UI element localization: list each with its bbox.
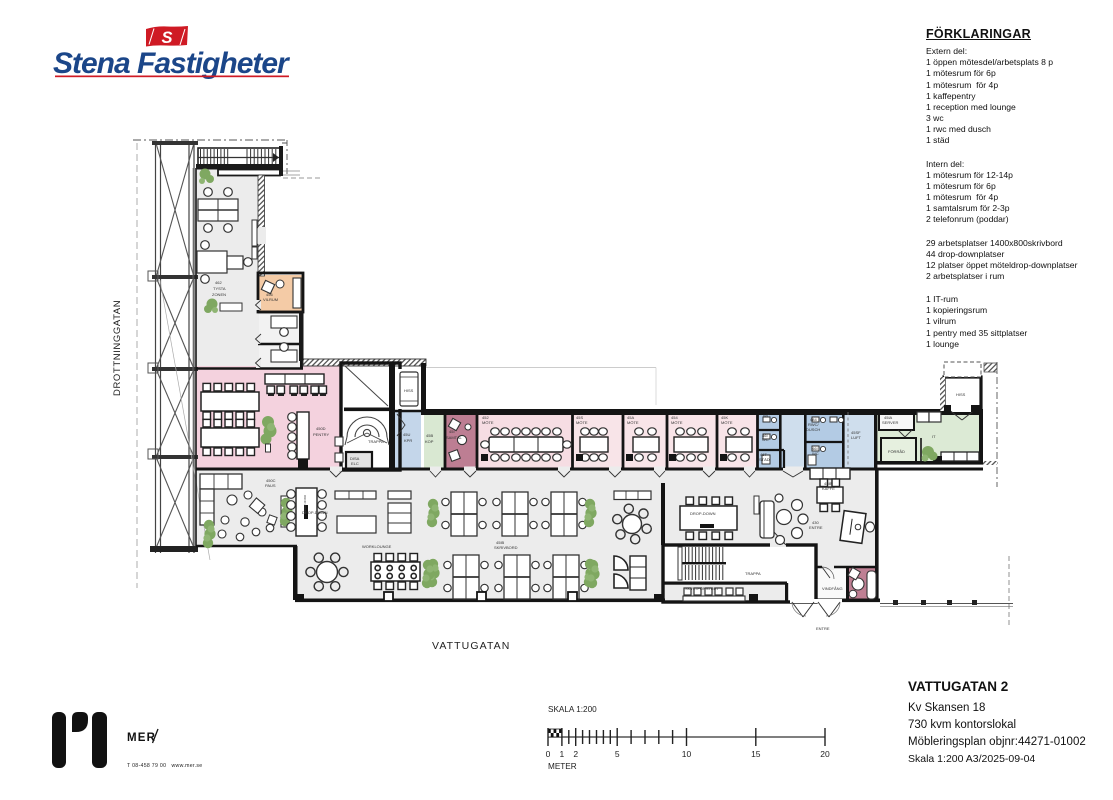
svg-text:TRAPPA: TRAPPA xyxy=(745,571,761,576)
svg-text:MER: MER xyxy=(127,732,156,744)
svg-text:ENTRE: ENTRE xyxy=(816,626,830,631)
svg-text:1: 1 xyxy=(560,749,565,759)
svg-text:METER: METER xyxy=(548,762,577,771)
svg-text:MÖTE: MÖTE xyxy=(627,420,639,425)
svg-text:5: 5 xyxy=(615,749,620,759)
svg-text:DUSCH: DUSCH xyxy=(806,427,820,432)
svg-text:2: 2 xyxy=(573,749,578,759)
svg-text:MÖTE: MÖTE xyxy=(576,420,588,425)
svg-text:LUFT: LUFT xyxy=(851,435,862,440)
svg-text:DROP-DOWN: DROP-DOWN xyxy=(690,511,716,516)
svg-text:450D: 450D xyxy=(316,426,326,431)
svg-text:WC: WC xyxy=(763,413,770,418)
svg-text:FÖRRÅD: FÖRRÅD xyxy=(888,449,905,454)
svg-text:MÖTE: MÖTE xyxy=(721,420,733,425)
svg-text:ENTRE: ENTRE xyxy=(809,525,823,530)
svg-text:KPR: KPR xyxy=(404,438,412,443)
svg-text:KAFFE: KAFFE xyxy=(822,486,835,491)
svg-text:45I: 45I xyxy=(449,429,455,434)
svg-text:VINDFÅNG: VINDFÅNG xyxy=(822,586,843,591)
svg-text:Stena Fastigheter: Stena Fastigheter xyxy=(53,47,291,80)
svg-text:SKRIVBORD: SKRIVBORD xyxy=(494,545,518,550)
svg-text:KOP: KOP xyxy=(425,439,434,444)
svg-text:IT: IT xyxy=(932,434,936,439)
svg-text:45B: 45B xyxy=(426,433,433,438)
svg-text:ELC: ELC xyxy=(351,461,359,466)
svg-text:WC: WC xyxy=(812,451,819,456)
svg-text:SKYLTFÖNSTRET: SKYLTFÖNSTRET xyxy=(685,586,719,591)
svg-text:STÄD: STÄD xyxy=(759,457,770,462)
svg-text:MÖTE: MÖTE xyxy=(482,420,494,425)
svg-text:VILRUM: VILRUM xyxy=(263,297,278,302)
svg-text:SKALA 1:200: SKALA 1:200 xyxy=(548,705,597,714)
svg-text:462: 462 xyxy=(215,280,222,285)
svg-text:S: S xyxy=(161,29,172,47)
svg-text:T 08-458 79 00 www.mer.se: T 08-458 79 00 www.mer.se xyxy=(127,763,202,769)
svg-text:PAUS: PAUS xyxy=(265,483,276,488)
svg-text:15: 15 xyxy=(751,749,761,759)
svg-text:SERVER: SERVER xyxy=(882,420,898,425)
svg-text:ZONEN: ZONEN xyxy=(212,292,226,297)
svg-text:PENTRY: PENTRY xyxy=(313,432,329,437)
svg-text:DROP-DOWN: DROP-DOWN xyxy=(303,495,307,514)
svg-text:WORKLOUNGE: WORKLOUNGE xyxy=(362,544,392,549)
svg-text:20: 20 xyxy=(820,749,830,759)
svg-text:10: 10 xyxy=(682,749,692,759)
svg-text:WC: WC xyxy=(762,437,769,442)
svg-text:HISS: HISS xyxy=(404,388,414,393)
svg-text:MÖTE: MÖTE xyxy=(671,420,683,425)
svg-text:0: 0 xyxy=(546,749,551,759)
svg-text:45U: 45U xyxy=(403,432,410,437)
svg-text:SAMTAL: SAMTAL xyxy=(446,435,462,440)
svg-text:TRAPPA: TRAPPA xyxy=(368,439,384,444)
svg-text:HISS: HISS xyxy=(956,392,966,397)
svg-text:TYSTA: TYSTA xyxy=(213,286,226,291)
